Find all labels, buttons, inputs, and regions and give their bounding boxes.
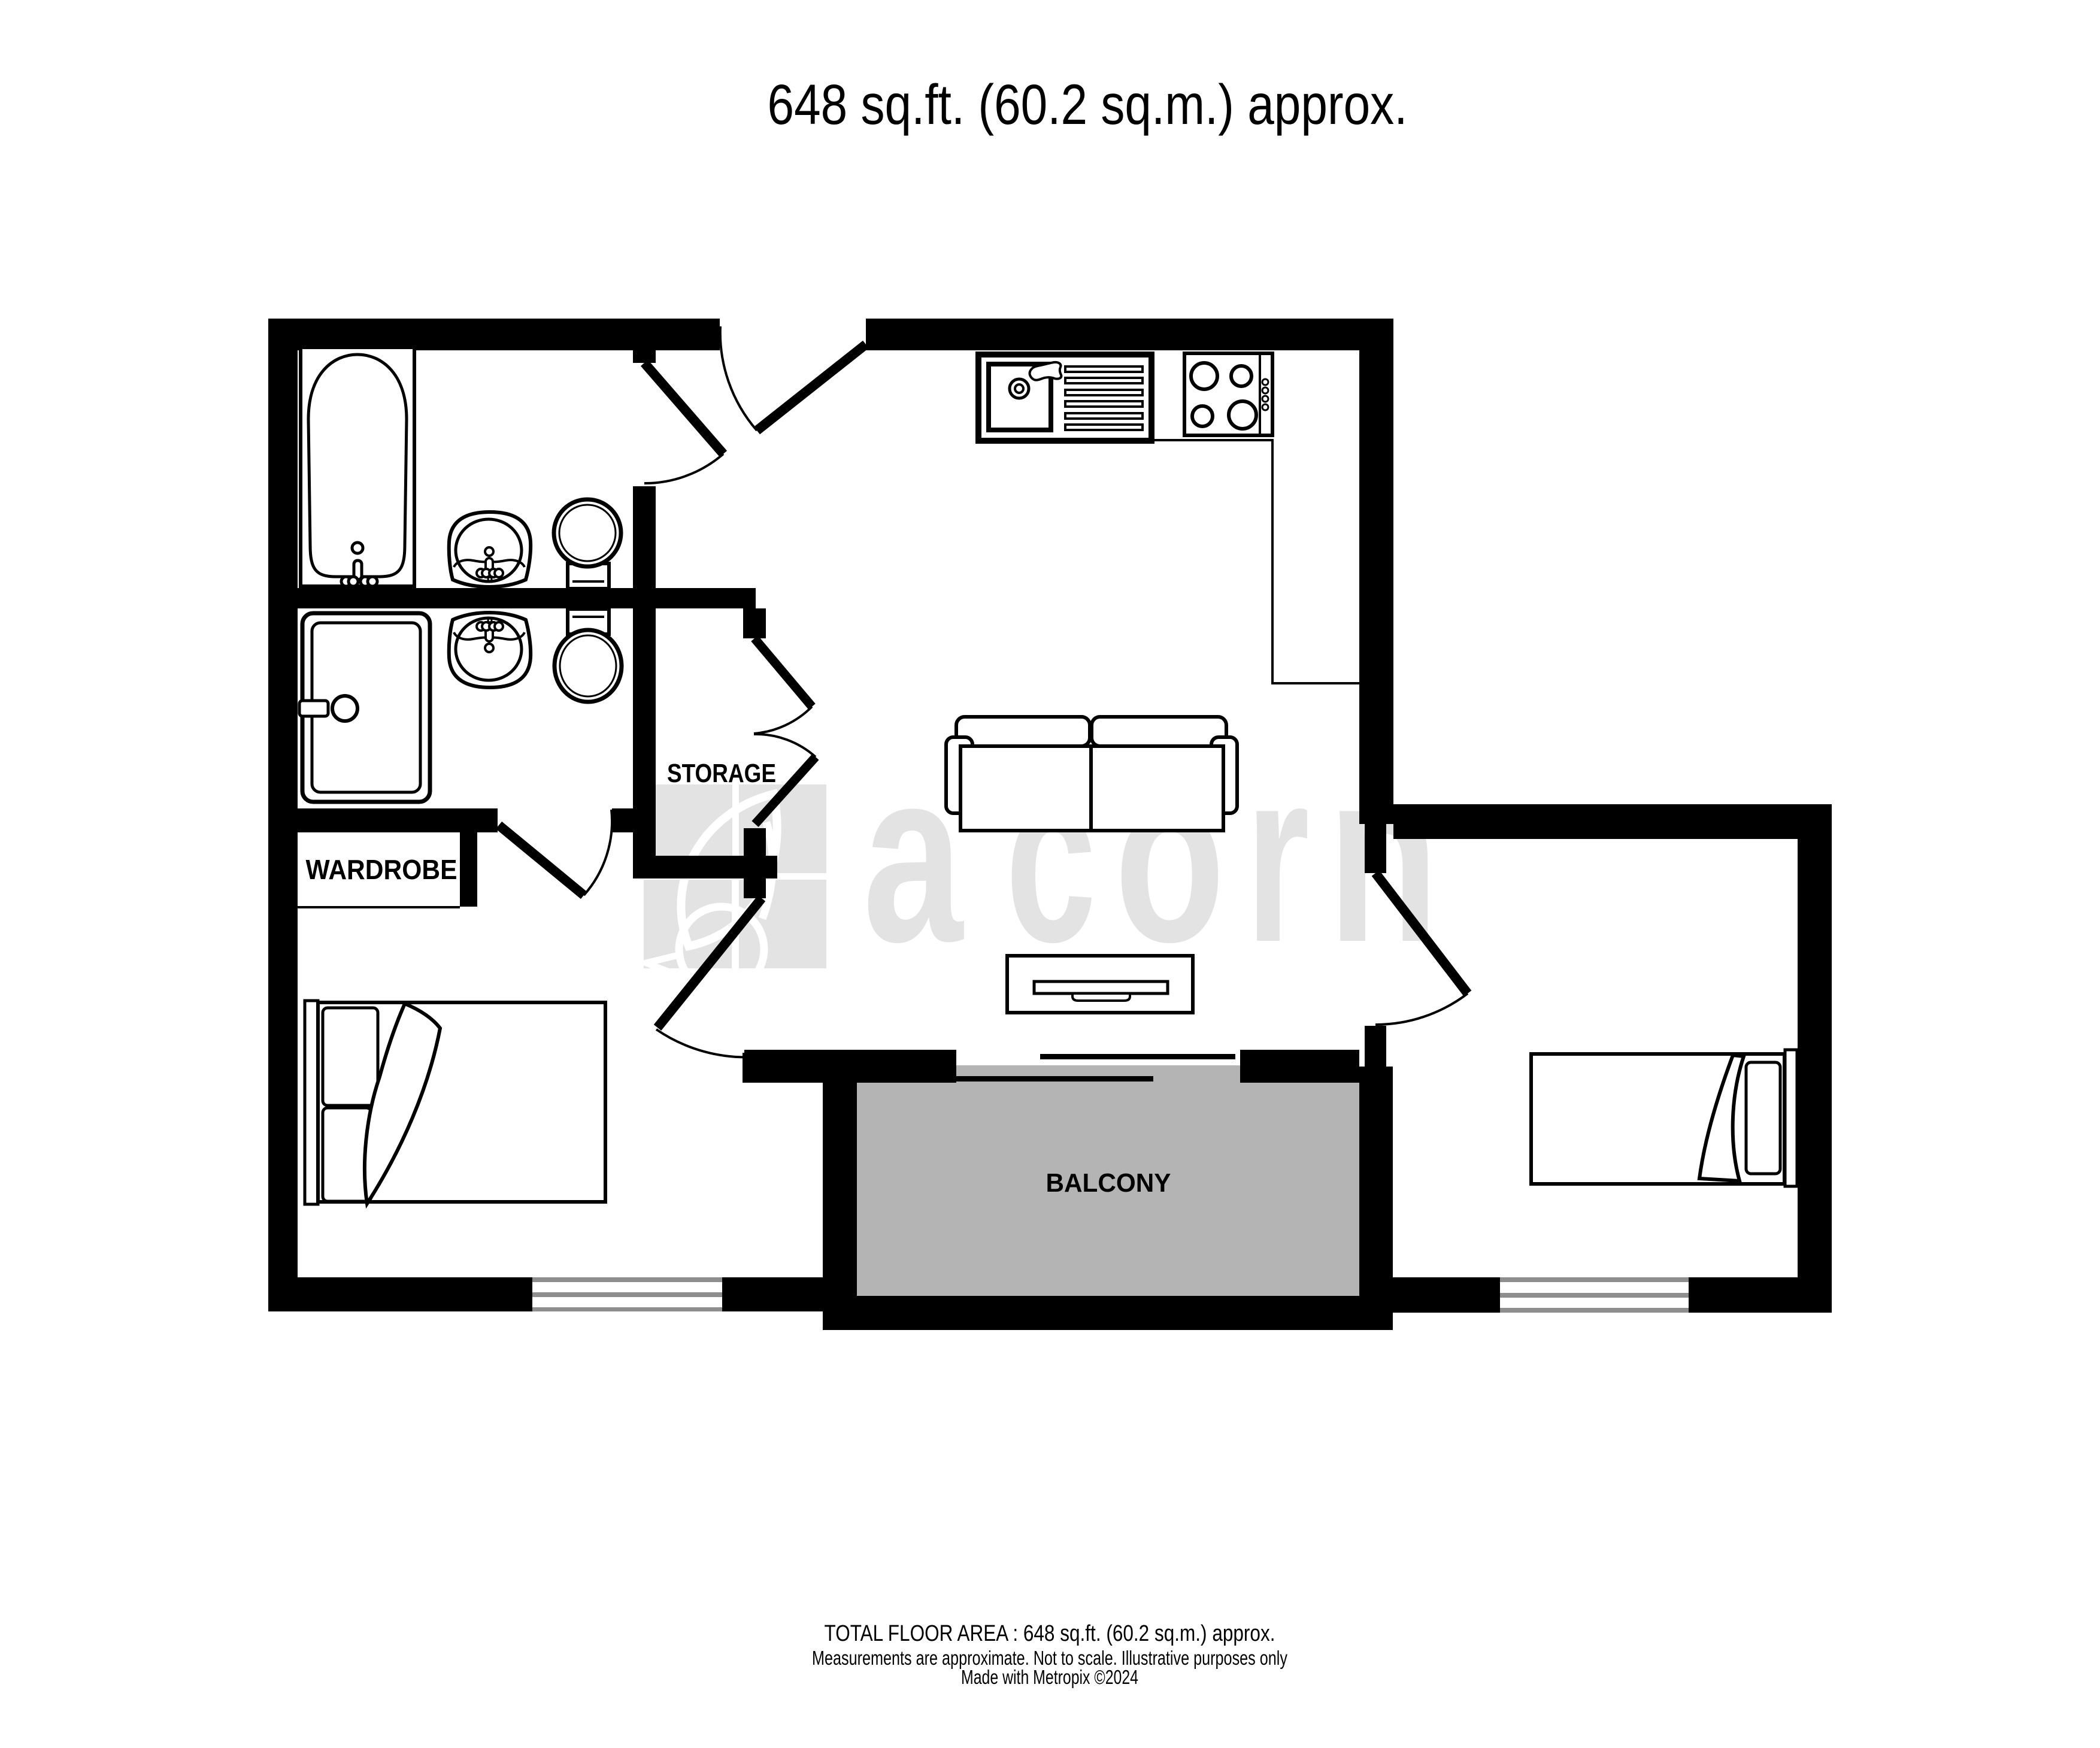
svg-text:648 sq.ft. (60.2 sq.m.) approx: 648 sq.ft. (60.2 sq.m.) approx.	[768, 73, 1408, 137]
svg-text:BALCONY: BALCONY	[1046, 1168, 1171, 1198]
svg-text:Made with Metropix ©2024: Made with Metropix ©2024	[961, 1666, 1138, 1688]
svg-text:STORAGE: STORAGE	[667, 759, 776, 788]
svg-text:TOTAL FLOOR AREA : 648 sq.ft.: TOTAL FLOOR AREA : 648 sq.ft. (60.2 sq.m…	[825, 1621, 1275, 1646]
svg-text:WARDROBE: WARDROBE	[306, 854, 457, 885]
svg-text:r: r	[1246, 719, 1310, 993]
